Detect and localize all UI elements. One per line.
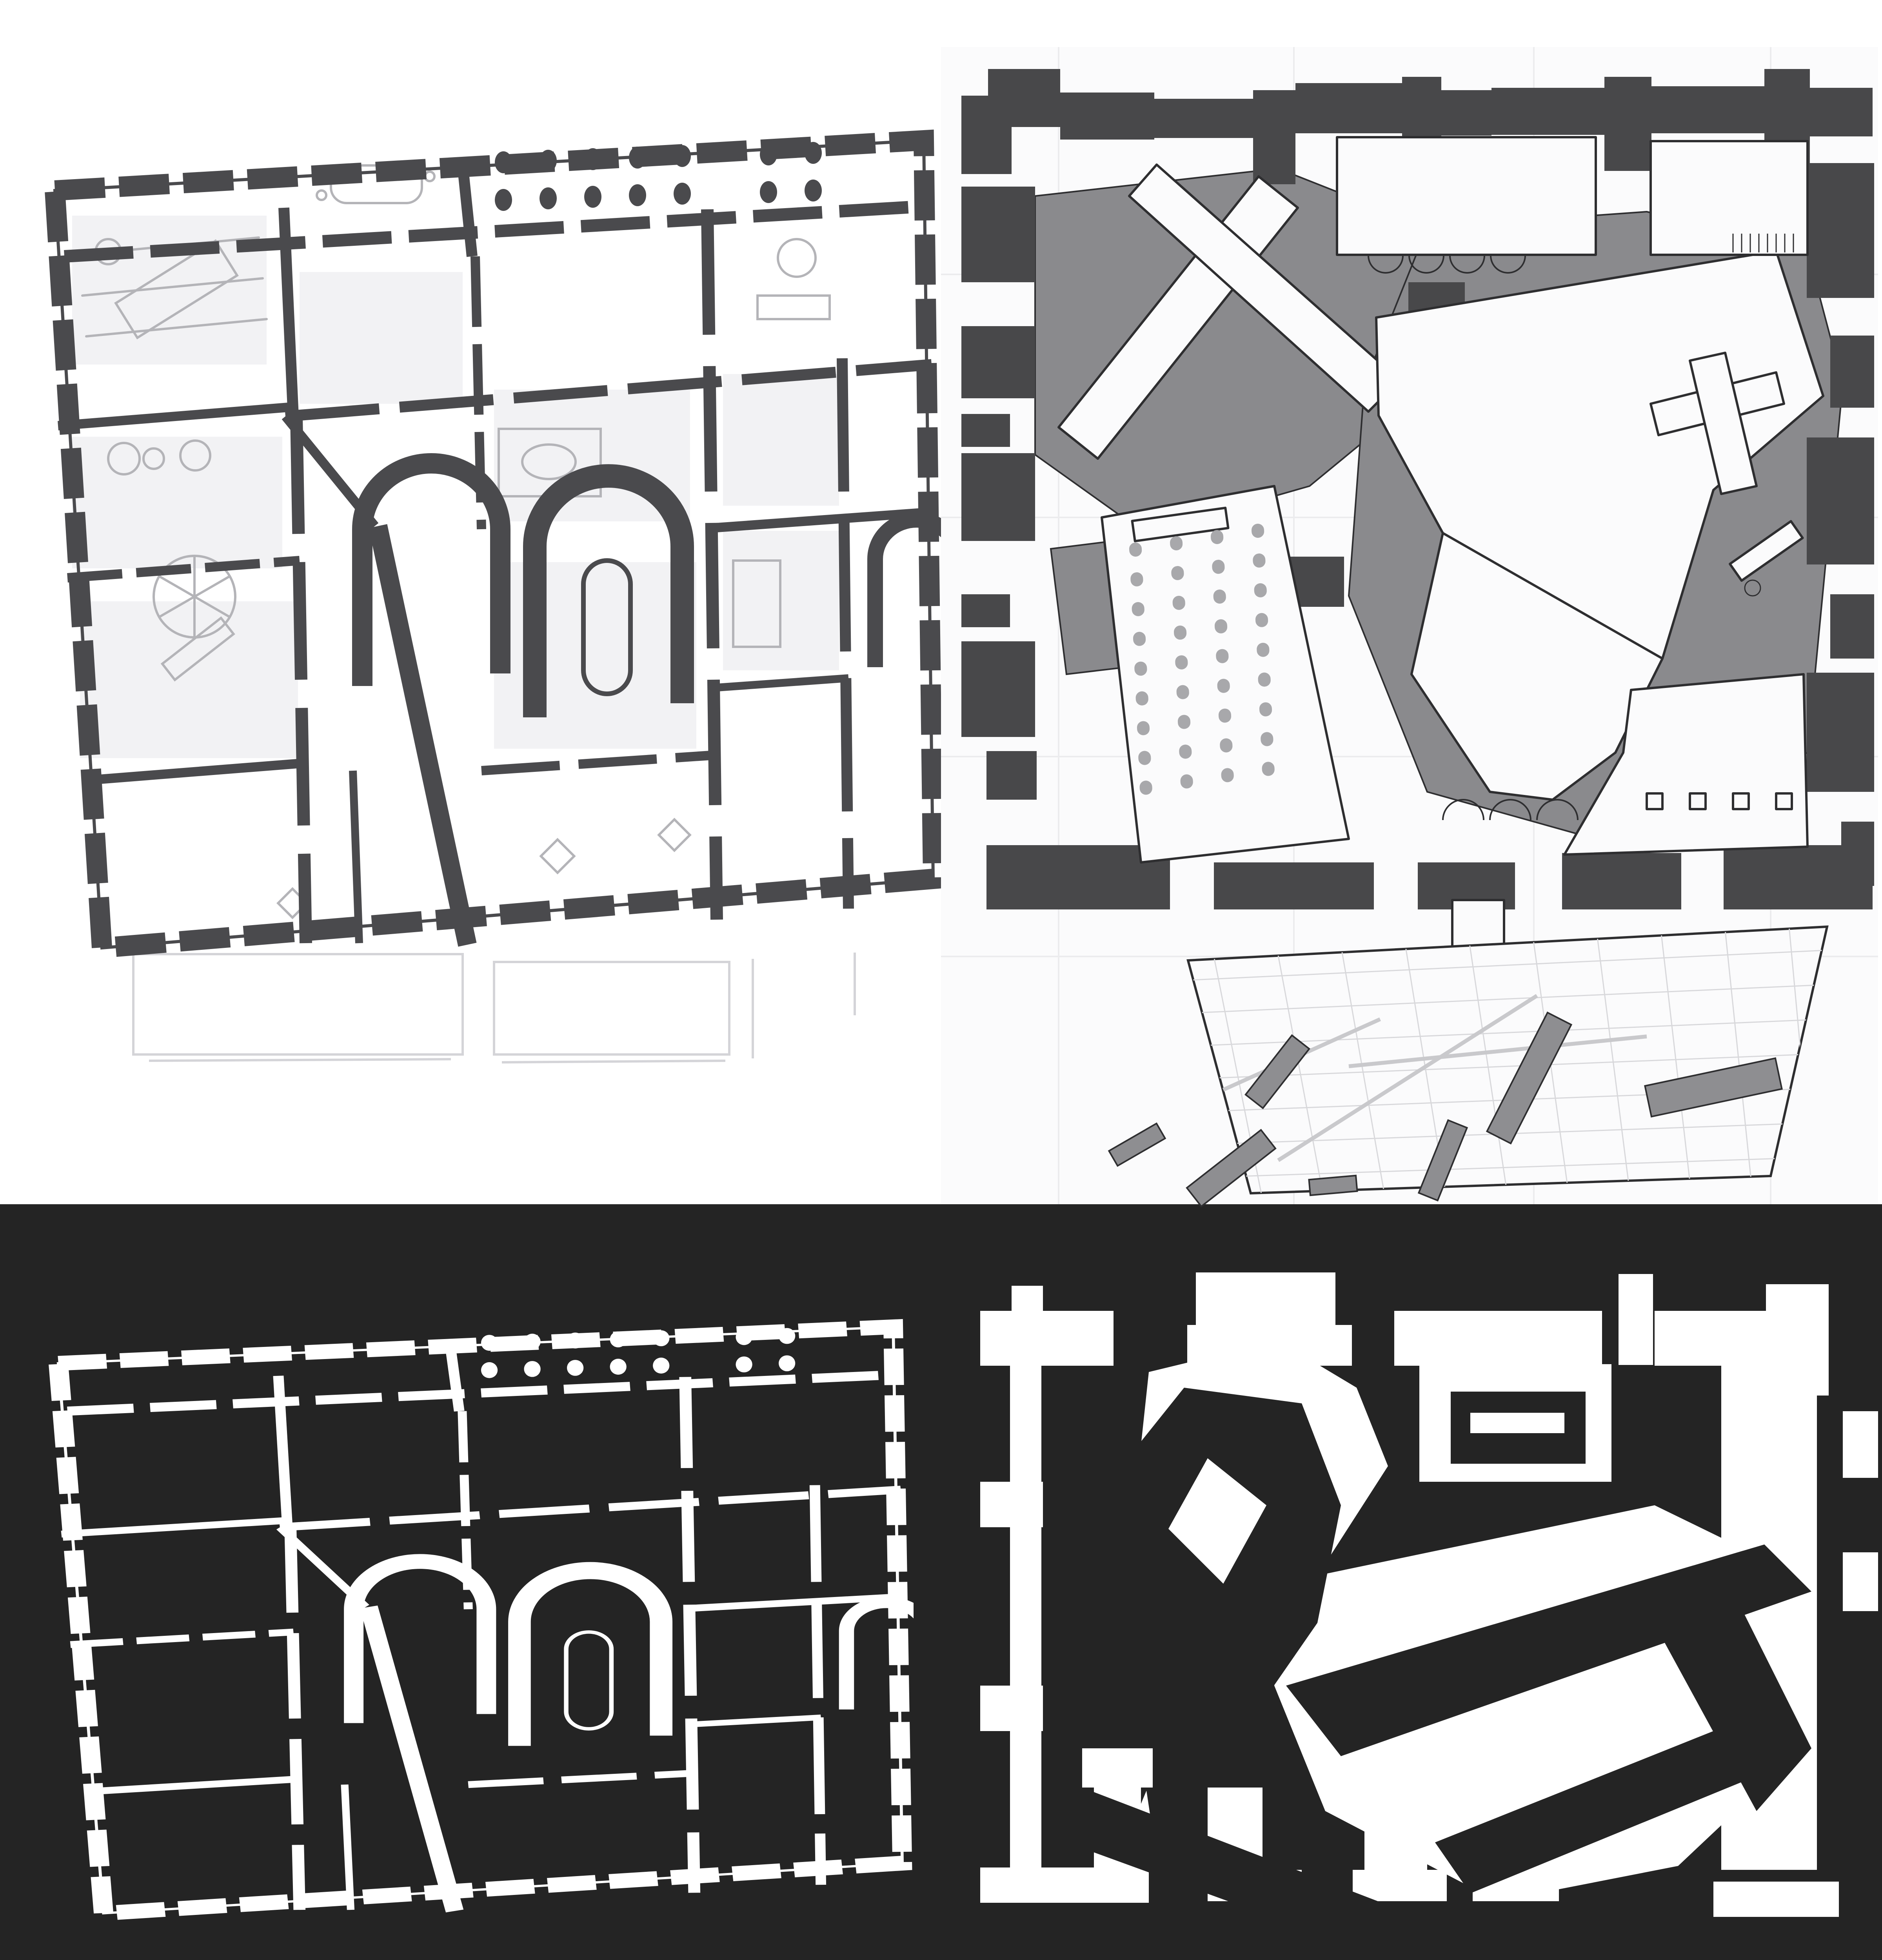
terrace-outlines — [133, 953, 855, 1062]
panel-classical-plan — [24, 90, 949, 1098]
panel-museum-figure-ground — [949, 1247, 1878, 1960]
room-tints — [72, 216, 839, 758]
panel-classical-figure-ground — [47, 1313, 914, 1922]
panel-museum-plan — [941, 47, 1878, 1215]
plan-study-sheet — [0, 0, 1882, 1960]
